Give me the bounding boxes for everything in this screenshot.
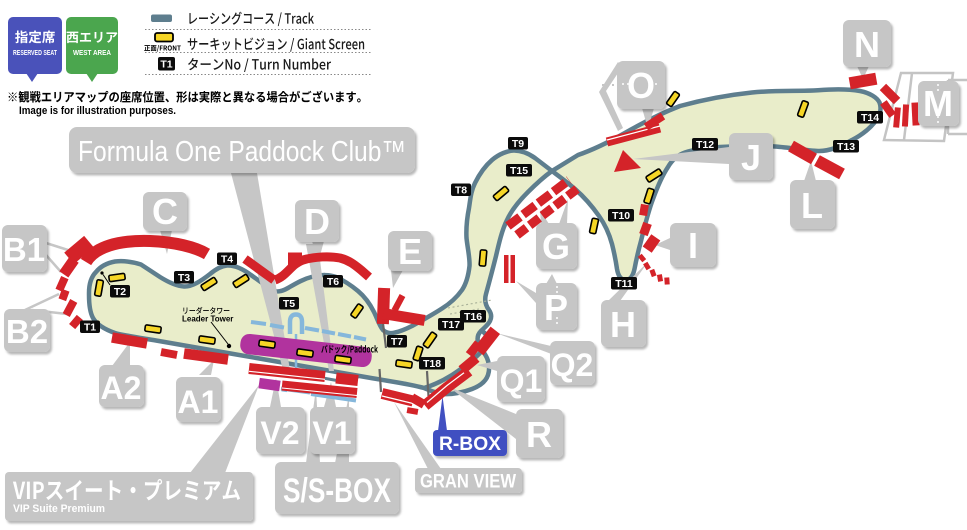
svg-text:T15: T15 [510,165,528,177]
svg-text:T11: T11 [615,278,633,290]
svg-text:T2: T2 [114,286,126,298]
svg-text:Q1: Q1 [500,363,543,399]
svg-text:WEST AREA: WEST AREA [73,50,111,57]
svg-text:T13: T13 [837,141,855,153]
svg-text:T14: T14 [861,112,879,124]
svg-text:I: I [688,225,698,266]
svg-text:C: C [152,191,178,232]
svg-text:T8: T8 [455,184,467,196]
svg-text:V2: V2 [260,415,299,451]
svg-text:T1: T1 [84,321,96,333]
svg-text:T3: T3 [178,272,190,284]
svg-text:T10: T10 [612,210,630,222]
svg-text:T12: T12 [696,139,714,151]
svg-text:T4: T4 [221,253,233,265]
svg-text:Leader Tower: Leader Tower [182,315,233,324]
svg-text:H: H [610,304,636,345]
svg-text:A1: A1 [178,384,219,420]
svg-text:L: L [801,185,823,226]
svg-text:S/S-BOX: S/S-BOX [283,472,391,510]
svg-text:R: R [526,414,552,455]
svg-text:B2: B2 [6,313,48,350]
svg-text:T6: T6 [327,276,339,288]
svg-text:T18: T18 [423,358,441,370]
svg-text:P: P [544,287,568,328]
svg-text:T17: T17 [442,319,460,331]
svg-text:T7: T7 [391,336,403,348]
svg-text:N: N [854,24,880,65]
svg-text:O: O [627,65,655,106]
svg-text:G: G [542,226,570,267]
svg-text:V1: V1 [312,415,351,451]
svg-text:T5: T5 [283,298,295,310]
svg-text:E: E [398,231,422,272]
svg-text:RESERVED SEAT: RESERVED SEAT [13,50,58,57]
svg-text:D: D [304,201,330,242]
svg-text:Image is for illustration purp: Image is for illustration purposes. [19,105,176,117]
svg-text:B1: B1 [3,231,45,268]
svg-text:J: J [741,137,761,178]
svg-text:Formula One Paddock Club™: Formula One Paddock Club™ [78,136,406,168]
svg-text:R-BOX: R-BOX [439,434,501,455]
svg-text:T9: T9 [512,138,524,150]
svg-text:Q2: Q2 [551,347,594,383]
svg-text:T1: T1 [160,59,172,71]
svg-text:VIP Suite Premium: VIP Suite Premium [13,503,105,515]
svg-text:A2: A2 [101,370,142,406]
svg-text:GRAN VIEW: GRAN VIEW [420,472,516,493]
svg-text:T16: T16 [464,311,482,323]
